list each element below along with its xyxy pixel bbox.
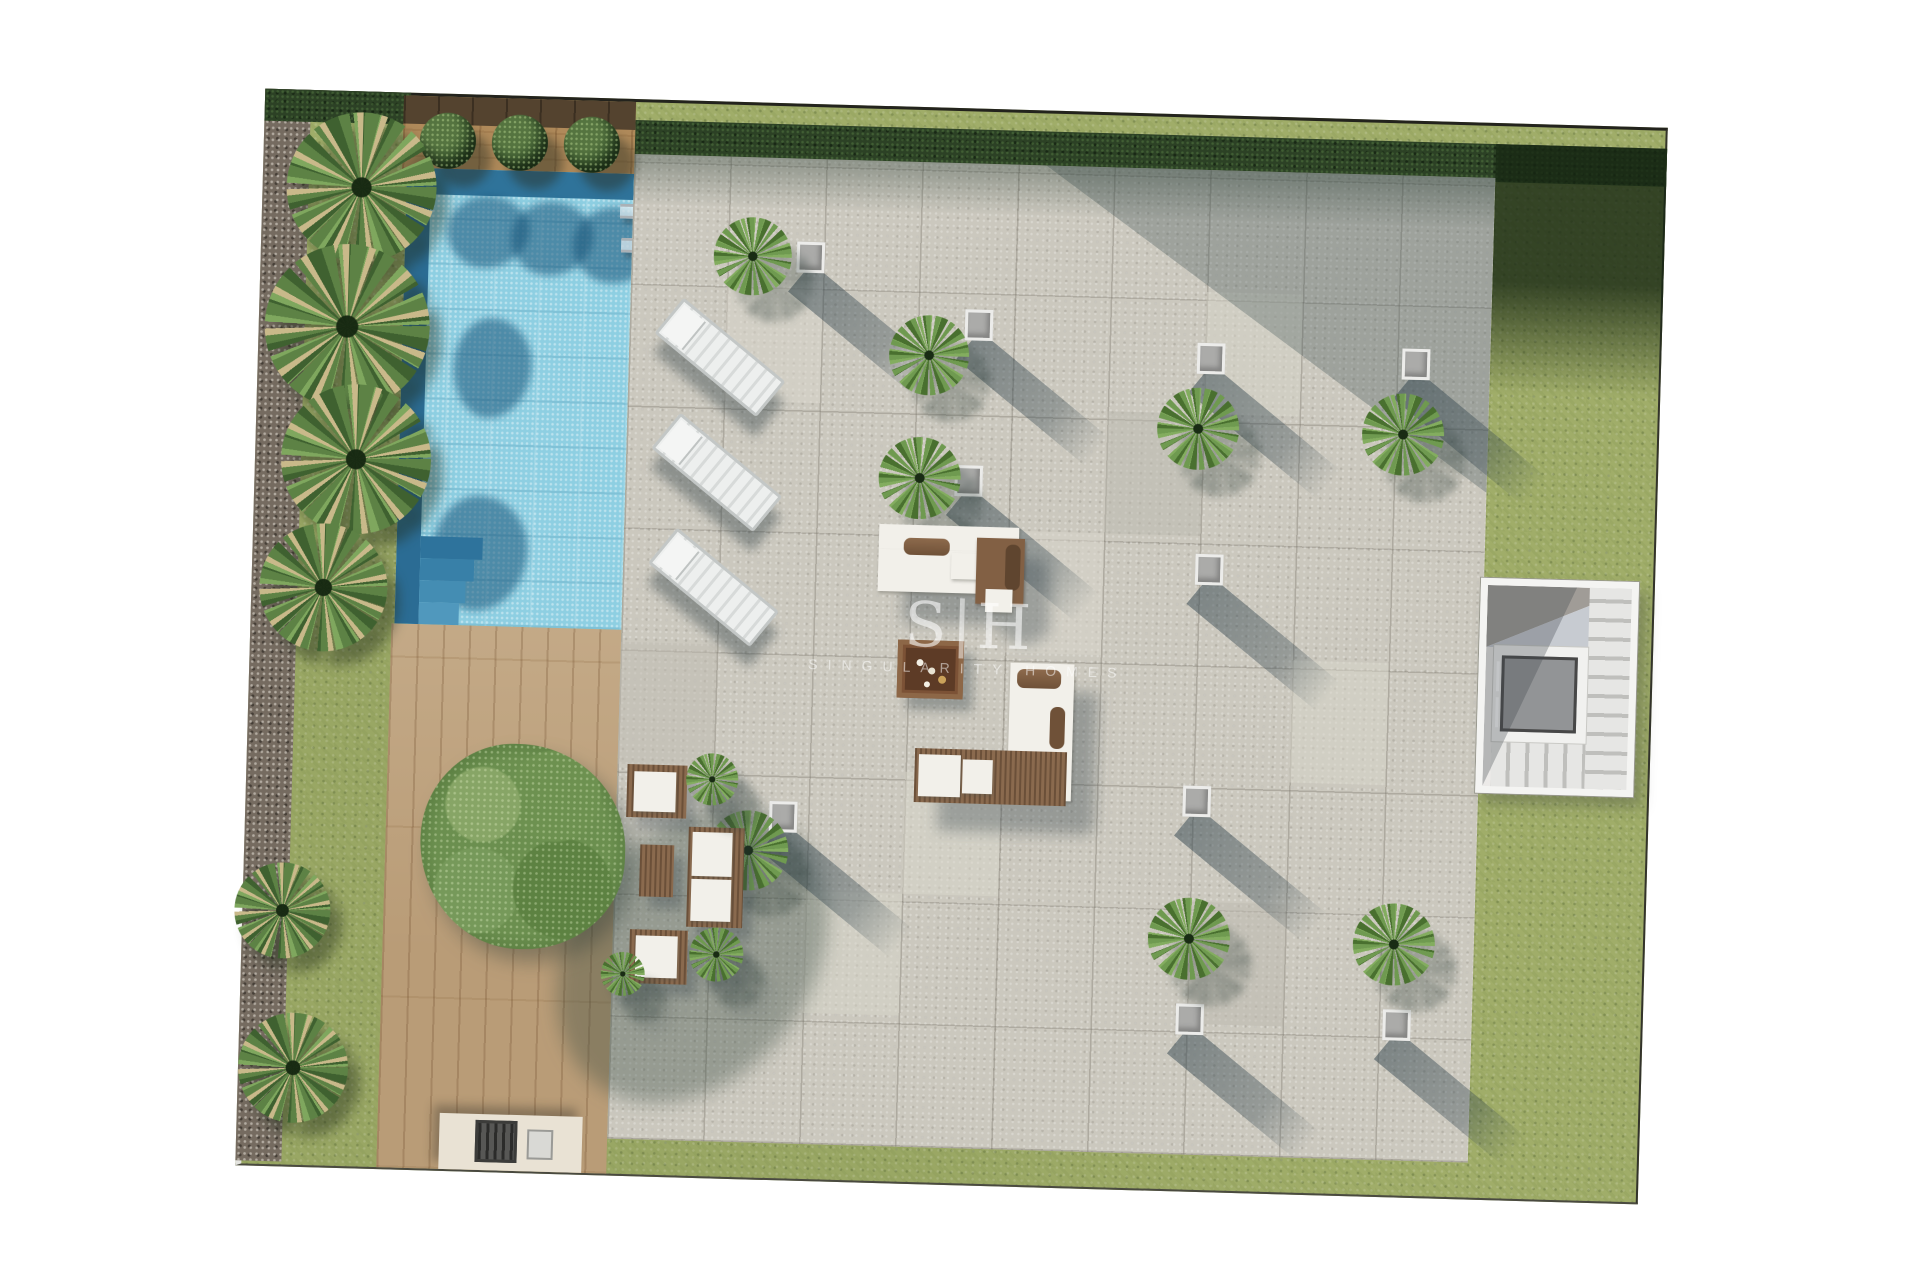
planter-box [796,242,825,274]
planter-box [1175,1003,1204,1035]
planter-box [1402,348,1431,380]
planter-shadow [1167,1025,1320,1161]
terrace-palm-tree [878,436,962,520]
terrace-palm-tree [713,216,793,296]
sun-lounger [654,298,785,418]
square-planter [1197,343,1226,375]
terrace-palm-tree [1352,902,1436,986]
nook-sofa-cushion [691,832,732,877]
stair-treads-right [1584,588,1632,790]
planter-box [965,309,994,341]
stair-elevator-core [1475,578,1639,797]
planter-box [1195,554,1224,586]
planter-shadow [1374,1031,1527,1167]
render-page: S|H SINGULARITY HOMES [0,0,1920,1280]
stair-treads-bottom [1490,741,1585,789]
potted-plant [600,951,645,996]
square-planter [1195,554,1224,586]
border-palm-tree [236,1011,349,1124]
garden-nook-seating [608,737,775,1001]
planter-shadow [1187,575,1340,711]
armchair-backrest [1005,544,1021,590]
sofa-cushion [904,538,950,556]
border-palm-tree [258,522,390,654]
square-planter [1382,1009,1411,1041]
nook-sofa-cushion [690,879,731,922]
square-planter [1402,348,1431,380]
nook-armchair-cushion [633,771,676,812]
bbq-sink [527,1129,554,1160]
border-palm-tree [279,382,433,536]
planter-shadow [956,331,1109,467]
sun-lounger [651,413,782,533]
sofa-cushion-white [962,759,993,794]
sofa-group-lower [909,653,1078,813]
planter-box [1182,786,1211,818]
potted-plant [685,753,738,806]
border-palm-tree [285,110,439,264]
planter-box [1382,1009,1411,1041]
side-table-cube [985,589,1013,613]
boxwood-bush [491,114,549,172]
square-planter [1182,786,1211,818]
terrace-palm-tree [1361,392,1445,476]
chaise-headrest [1017,669,1062,689]
sofa-group-upper [872,514,1050,624]
square-planter [965,309,994,341]
square-planter [1175,1003,1204,1035]
chaise-side-cushion [1049,707,1065,749]
sun-lounger [648,528,779,648]
bbq-station [438,1113,583,1173]
square-planter [796,242,825,274]
terrace-palm-tree [888,314,970,396]
bbq-grill [474,1120,517,1163]
terrace-palm-tree [1147,897,1231,981]
boxwood-bush [563,116,621,174]
border-palm-tree [233,861,332,960]
potted-plant [689,927,744,982]
terrace-palm-tree [1156,387,1240,471]
nook-stool [639,844,674,897]
sofa-cushion-white [918,754,961,797]
planter-box [1197,343,1226,375]
site-plan-render: S|H SINGULARITY HOMES [235,89,1668,1205]
